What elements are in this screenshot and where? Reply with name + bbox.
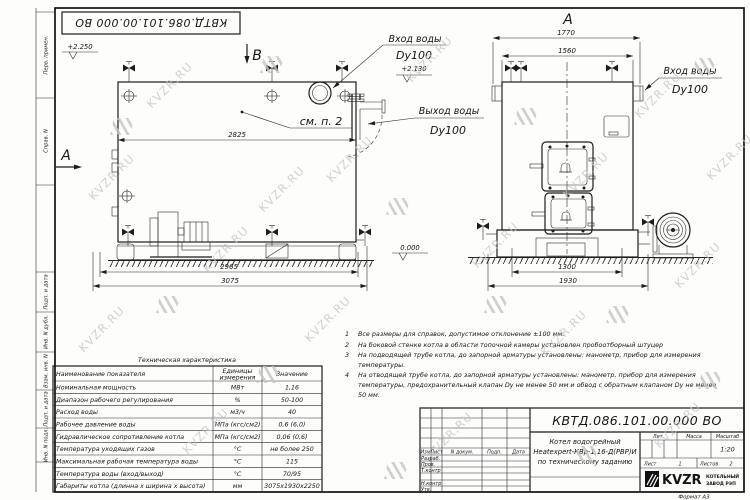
outlet-water-label: Выход воды	[419, 106, 480, 117]
spec-header-name: Наименование показателя	[56, 371, 145, 378]
dim-1560: 1560	[558, 47, 576, 55]
flange-icon	[119, 189, 135, 203]
note-text: На подводящей трубе котла, до запорной а…	[358, 351, 718, 370]
dim-1930: 1930	[559, 277, 577, 285]
spec-cell: Гидравлическое сопротивление котла	[56, 434, 184, 441]
valve-icon	[266, 226, 278, 247]
section-a-label: А	[60, 148, 71, 164]
flange-icon	[121, 89, 137, 103]
spec-header-value: Значение	[276, 371, 308, 378]
spec-cell: %	[235, 397, 241, 404]
flange-icon	[337, 89, 353, 103]
tb-row-tkontr: Т.контр	[421, 468, 441, 474]
spec-cell: Рабочее давление воды	[56, 421, 136, 429]
elevation-mark-icon	[62, 52, 98, 59]
product-name-line3: по техническому заданию	[538, 458, 633, 466]
frame-label-sprav-n: Справ. N	[44, 129, 50, 153]
spec-cell: °С	[234, 445, 242, 453]
note-item: 1 Все размеры для справок, допустимое от…	[345, 330, 743, 340]
tb-header-ndokum: N докум.	[451, 450, 474, 456]
drawing-canvas: Перв. примен. Справ. N Подп. и дата Инв.…	[0, 0, 750, 500]
valve-icon	[505, 62, 517, 83]
side-view: 2825 см. п. 2	[56, 34, 484, 291]
spec-cell: 40	[288, 409, 296, 416]
tb-scale-label: Масштаб	[716, 434, 739, 440]
valve-icon	[359, 226, 371, 247]
see-note-label: см. п. 2	[300, 115, 343, 128]
product-name-line1: Котел водогрейный	[549, 438, 621, 446]
spec-cell: Температура воды (вход/выход)	[56, 471, 164, 478]
drawing-sheet: Перв. примен. Справ. N Подп. и дата Инв.…	[0, 0, 750, 500]
flange-icon	[264, 89, 280, 103]
note-item: 4 На отводящей трубе котла, до запорной …	[345, 371, 743, 400]
valve-icon	[477, 220, 489, 241]
note-text: На отводящей трубе котла, до запорной ар…	[358, 371, 718, 400]
front-view: А 1770 1560	[477, 12, 722, 291]
valve-icon	[122, 226, 134, 247]
spec-cell: не более 250	[270, 445, 314, 453]
elevation-zero: 0.000	[400, 244, 419, 252]
tb-header-list: Лист	[429, 450, 443, 456]
front-inlet-dn-label: Dy100	[672, 83, 708, 96]
tb-sheet-value: 1	[678, 462, 681, 468]
spec-table-title: Техническая характеристика	[138, 357, 236, 364]
tb-sheets-value: 2	[729, 462, 732, 468]
tb-header-izm: Изм	[421, 450, 431, 456]
tb-header-podp: Подп.	[487, 450, 502, 456]
tb-sheets-label: Листов	[699, 462, 718, 468]
spec-cell: °С	[234, 470, 242, 478]
tb-header-data: Дата	[511, 450, 525, 456]
inlet-dn-label: Dy100	[396, 49, 432, 62]
spec-cell: 70/95	[283, 471, 301, 478]
valve-icon	[606, 62, 618, 83]
tb-mass-label: Масса	[686, 434, 702, 440]
elevation-top: +2.250	[67, 43, 92, 51]
tb-lit-label: Лит.	[652, 434, 664, 440]
frame-label-vzam-inv: Взам. инв. N	[44, 354, 50, 388]
spec-cell: Расход воды	[56, 409, 98, 416]
spec-cell: МПа (кгс/см2)	[215, 422, 261, 429]
spec-cell: Температура уходящих газов	[56, 446, 155, 453]
inverted-designation-stamp: КВТД.086.101.00.000 ВО	[75, 16, 227, 29]
outlet-dn-label: Dy100	[430, 124, 466, 137]
front-inlet-water-label: Вход воды	[663, 66, 717, 77]
dim-2965: 2965	[220, 263, 238, 271]
spec-cell: МПа (кгс/см2)	[215, 434, 261, 441]
spec-header-units-2: измерения	[220, 375, 256, 382]
company-logo-text: KVZR	[662, 473, 702, 488]
spec-cell: 3075х1930х2250	[264, 483, 320, 490]
notes-list: 1 Все размеры для справок, допустимое от…	[345, 330, 743, 401]
elevation-inlet: +2.130	[401, 65, 426, 73]
spec-cell: 0,6 (6,0)	[279, 422, 306, 429]
product-name-line2: Heatexpert-КВр-1,16-Д(РВР)И	[533, 448, 636, 456]
spec-cell: Диапазон рабочего регулирования	[55, 396, 173, 404]
inlet-water-label: Вход воды	[388, 34, 442, 45]
tb-scale-value: 1:20	[720, 446, 735, 454]
spec-cell: °С	[234, 458, 242, 466]
frame-label-inv-podl: Инв. N подл.	[44, 428, 50, 462]
tb-row-utv: Утв.	[421, 487, 431, 493]
note-number: 4	[345, 371, 358, 400]
spec-cell: 115	[286, 459, 298, 466]
spec-cell: 50-100	[281, 397, 303, 404]
company-name-line1: КОТЕЛЬНЫЙ	[706, 472, 739, 480]
format-label: Формат А3	[678, 495, 710, 500]
valve-icon	[123, 62, 135, 83]
dim-1300: 1300	[558, 263, 576, 271]
elevation-mark-icon	[392, 253, 428, 260]
note-number: 2	[345, 341, 358, 351]
frame-label-podp-data-2: Подп. и дата	[44, 391, 50, 426]
dim-3075: 3075	[221, 277, 239, 285]
note-item: 2 На боковой стенке котла в области топо…	[345, 341, 743, 351]
spec-cell: Максимальная рабочая температура воды	[56, 458, 198, 466]
valve-icon	[266, 62, 278, 83]
spec-cell: 1,16	[285, 385, 299, 392]
spec-cell: мм	[233, 483, 243, 490]
spec-cell: Габариты котла (длинна х ширина х высота…	[56, 482, 205, 490]
spec-cell: м3/ч	[230, 409, 245, 416]
dim-1770: 1770	[557, 29, 575, 37]
spec-cell: МВт	[231, 385, 245, 392]
elevation-mark-icon	[396, 75, 432, 82]
title-designation: КВТД.086.101.00.000 ВО	[552, 413, 721, 428]
spec-table: Техническая характеристика Наименование …	[53, 357, 322, 492]
dim-2825: 2825	[228, 131, 246, 139]
note-number: 1	[345, 330, 358, 340]
frame-label-podp-data-1: Подп. и дата	[44, 274, 50, 309]
frame-label-perv-primen: Перв. примен.	[44, 36, 50, 75]
title-block: КВТД.086.101.00.000 ВО Изм Лист N докум.…	[420, 408, 744, 500]
spec-cell: Номинальная мощность	[56, 385, 137, 392]
view-a-title: А	[562, 12, 573, 28]
tb-sheet-label: Лист	[643, 462, 657, 468]
note-item: 3 На подводящей трубе котла, до запорной…	[345, 351, 743, 370]
note-text: На боковой стенке котла в области топочн…	[358, 341, 718, 351]
company-name-line2: ЗАВОД РЭП	[706, 481, 736, 487]
note-number: 3	[345, 351, 358, 370]
spec-cell: 0,06 (0,6)	[277, 434, 308, 441]
valve-icon	[515, 62, 527, 83]
view-b-label: В	[252, 48, 262, 64]
valve-icon	[642, 216, 654, 237]
valve-icon	[336, 62, 348, 83]
note-text: Все размеры для справок, допустимое откл…	[358, 330, 718, 340]
frame-label-inv-dubl: Инв. N дубл.	[44, 315, 50, 349]
